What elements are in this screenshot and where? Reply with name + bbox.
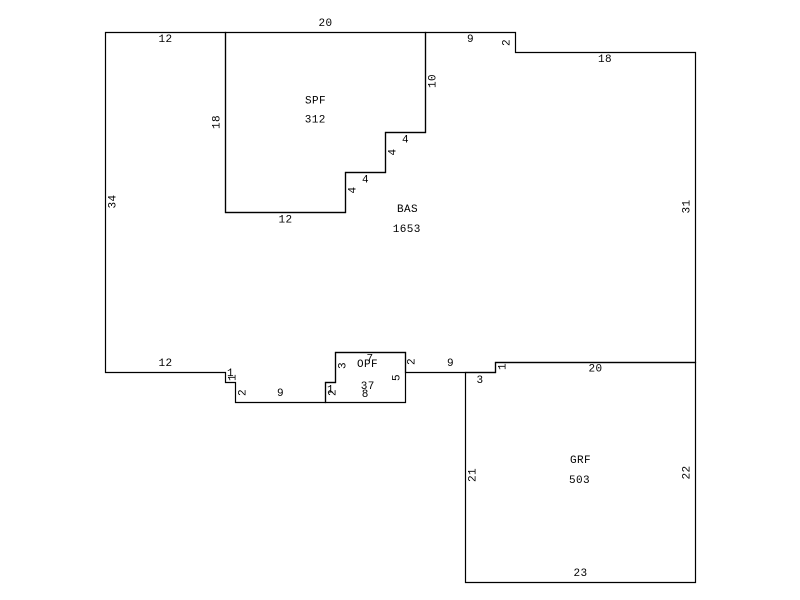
svg-text:20: 20 — [588, 364, 602, 376]
svg-text:12: 12 — [158, 34, 172, 46]
svg-text:5: 5 — [392, 374, 404, 381]
svg-text:22: 22 — [682, 465, 694, 479]
svg-text:2: 2 — [328, 389, 340, 396]
svg-text:503: 503 — [569, 475, 590, 487]
svg-text:4: 4 — [388, 148, 400, 155]
svg-text:8: 8 — [362, 389, 369, 401]
svg-text:1653: 1653 — [393, 224, 421, 236]
svg-text:4: 4 — [402, 135, 409, 147]
svg-text:2: 2 — [238, 389, 250, 396]
svg-text:BAS: BAS — [397, 204, 418, 216]
svg-text:21: 21 — [468, 468, 480, 482]
svg-text:9: 9 — [277, 388, 284, 400]
svg-text:34: 34 — [108, 194, 120, 208]
svg-text:2: 2 — [407, 358, 419, 365]
svg-text:12: 12 — [278, 215, 292, 227]
svg-text:18: 18 — [598, 54, 612, 66]
svg-text:20: 20 — [318, 18, 332, 30]
svg-text:31: 31 — [682, 199, 694, 213]
svg-text:9: 9 — [447, 358, 454, 370]
svg-text:9: 9 — [467, 34, 474, 46]
svg-text:GRF: GRF — [570, 455, 591, 467]
svg-text:SPF: SPF — [305, 96, 326, 108]
svg-text:312: 312 — [305, 115, 326, 127]
svg-text:3: 3 — [476, 375, 483, 387]
svg-text:2: 2 — [502, 39, 514, 46]
svg-text:4: 4 — [362, 175, 369, 187]
svg-text:10: 10 — [428, 74, 440, 88]
svg-text:1: 1 — [498, 363, 510, 370]
svg-text:4: 4 — [348, 186, 360, 193]
svg-text:23: 23 — [573, 568, 587, 580]
svg-text:12: 12 — [158, 358, 172, 370]
svg-text:OPF: OPF — [357, 359, 378, 371]
svg-text:3: 3 — [338, 362, 350, 369]
svg-text:1: 1 — [228, 374, 240, 381]
svg-text:18: 18 — [212, 115, 224, 129]
